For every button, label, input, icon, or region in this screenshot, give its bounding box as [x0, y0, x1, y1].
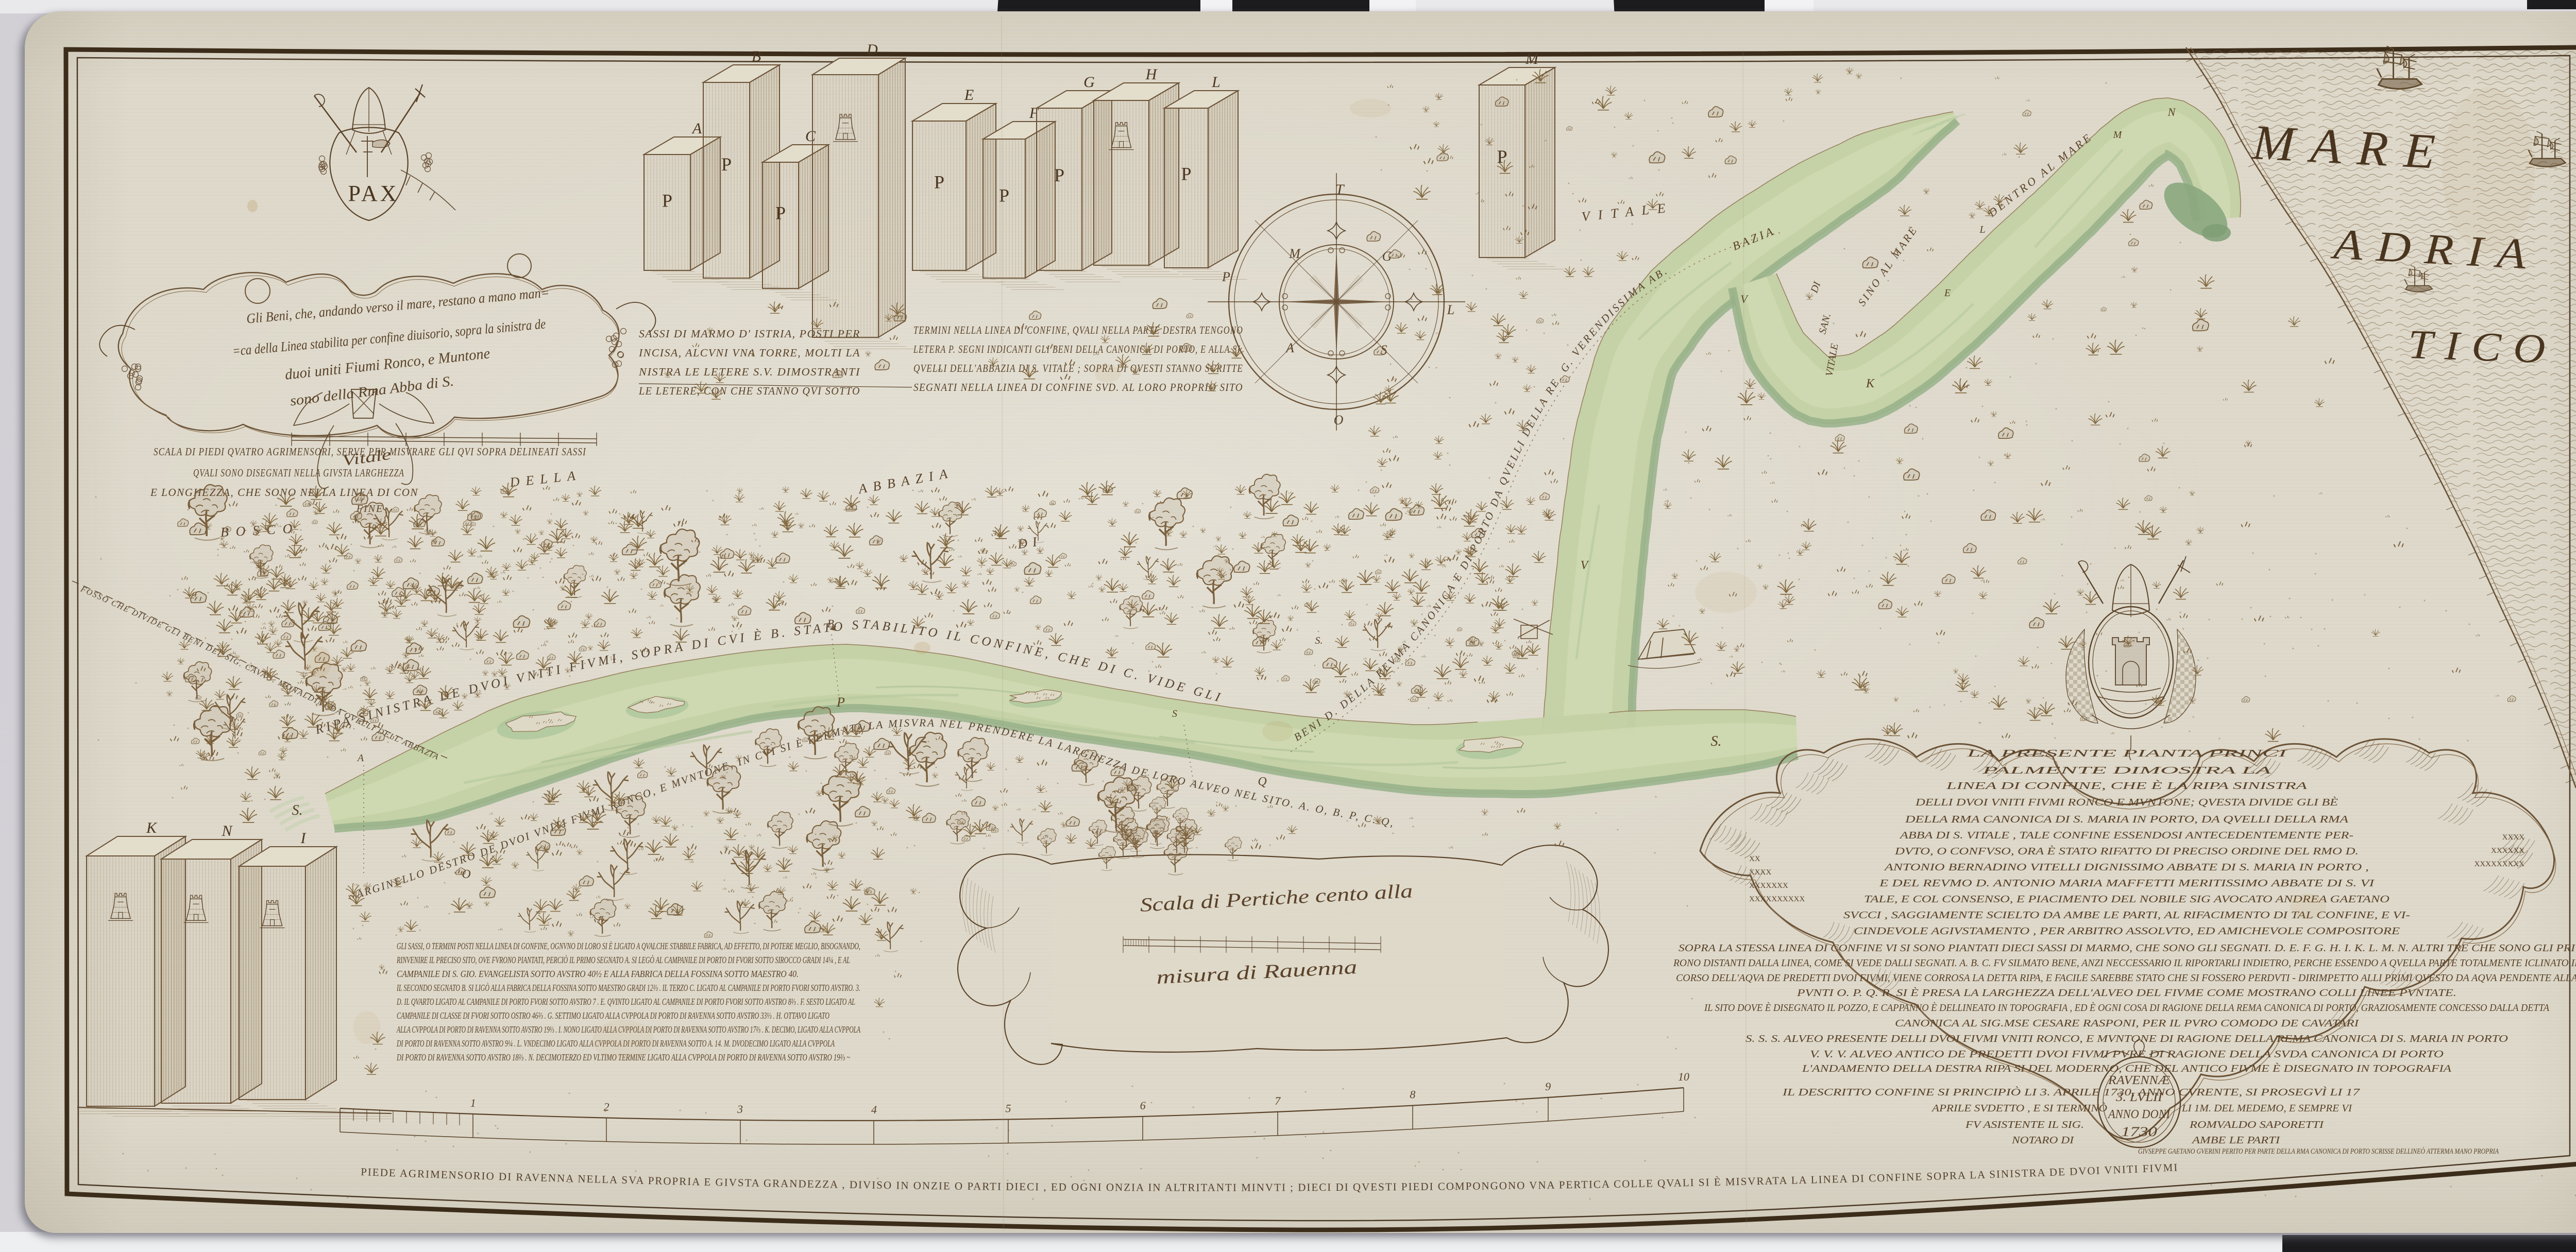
svg-text:GLI SASSI, O TERMINI POSTI N: GLI SASSI, O TERMINI POSTI NELLA LINEA D… — [397, 941, 860, 951]
svg-text:TERMINI NELLA LINEA DI CONFIN: TERMINI NELLA LINEA DI CONFINE, QVALI NE… — [913, 324, 1243, 336]
svg-text:E: E — [1944, 287, 1951, 299]
svg-text:K: K — [146, 819, 158, 836]
svg-text:G: G — [1083, 74, 1095, 91]
svg-text:PVNTI O. P. Q. R. SI È PRESA: PVNTI O. P. Q. R. SI È PRESA LA LARGHEZZ… — [1797, 987, 2456, 999]
svg-text:L: L — [1447, 302, 1454, 317]
svg-text:T: T — [1335, 181, 1345, 198]
svg-text:D: D — [866, 41, 878, 58]
svg-text:P: P — [662, 190, 672, 211]
svg-text:SOPRA LA STESSA LINEA DI CONFI: SOPRA LA STESSA LINEA DI CONFINE VI SI S… — [1679, 943, 2576, 954]
svg-text:PAX: PAX — [348, 181, 399, 206]
svg-text:P: P — [1497, 146, 1507, 167]
svg-text:9: 9 — [1545, 1080, 1551, 1093]
svg-text:CAMPANILE DI CLASSE DI FVORI S: CAMPANILE DI CLASSE DI FVORI SOTTO OSTRO… — [397, 1010, 829, 1021]
svg-text:Q: Q — [1258, 775, 1266, 788]
svg-text:LI 1M. DEL MEDEMO, E SEMPRE VI: LI 1M. DEL MEDEMO, E SEMPRE VI — [2181, 1103, 2353, 1114]
svg-text:P: P — [836, 695, 845, 710]
svg-text:XXXX: XXXX — [1749, 868, 1771, 877]
svg-text:ROMVALDO SAPORETTI: ROMVALDO SAPORETTI — [2189, 1120, 2325, 1130]
svg-text:APRILE SVDETTO , E SI TERMINÒ: APRILE SVDETTO , E SI TERMINÒ — [1931, 1103, 2107, 1114]
svg-text:RINVENIRE IL PRECISO SITO, O: RINVENIRE IL PRECISO SITO, OVE FVRONO PI… — [396, 955, 850, 965]
svg-text:L: L — [1211, 74, 1221, 91]
svg-text:XXXXXXX: XXXXXXX — [1749, 882, 1788, 890]
svg-text:S.: S. — [1711, 733, 1722, 749]
svg-text:QVALI SONO DISEGNATI NELLA GIV: QVALI SONO DISEGNATI NELLA GIVSTA LARGHE… — [193, 467, 404, 479]
svg-text:TICO: TICO — [2407, 322, 2558, 372]
svg-text:5: 5 — [1006, 1102, 1011, 1115]
svg-text:D. IL QVARTO LIGATO AL CAMPANI: D. IL QVARTO LIGATO AL CAMPANILE DI PORT… — [396, 997, 855, 1007]
svg-text:K: K — [1866, 377, 1875, 390]
svg-text:IL SITO DOVE È DISEGNATO IL PO: IL SITO DOVE È DISEGNATO IL POZZO, E CAP… — [1704, 1002, 2549, 1014]
svg-text:P: P — [775, 202, 786, 223]
svg-text:M: M — [2113, 129, 2123, 141]
svg-text:N: N — [221, 822, 233, 839]
svg-text:3: 3 — [737, 1103, 743, 1116]
svg-text:S: S — [1172, 708, 1177, 719]
svg-text:E DEL REVMO D. ANTONIO MARIA M: E DEL REVMO D. ANTONIO MARIA MAFFETTI ME… — [1879, 878, 2376, 889]
svg-text:ANTONIO BERNADINO VITELLI DIGN: ANTONIO BERNADINO VITELLI DIGNISSIMO ABB… — [1883, 862, 2369, 873]
svg-text:L: L — [1979, 224, 1985, 235]
svg-text:1730: 1730 — [2121, 1124, 2157, 1139]
svg-text:B: B — [752, 48, 761, 65]
svg-text:S.: S. — [292, 802, 303, 818]
svg-text:DELLA RMA CANONICA DI S. MARIA: DELLA RMA CANONICA DI S. MARIA IN PORTO,… — [1905, 814, 2349, 825]
svg-text:RAVENNÆ: RAVENNÆ — [2108, 1074, 2170, 1087]
svg-text:NISTRA LE LETERE S.V. DIMOSTRA: NISTRA LE LETERE S.V. DIMOSTRANTI — [638, 366, 860, 378]
svg-text:O: O — [1334, 413, 1344, 427]
svg-text:SASSI DI MARMO D' ISTRIA, POST: SASSI DI MARMO D' ISTRIA, POSTI PER — [639, 328, 860, 340]
svg-text:P: P — [999, 185, 1009, 206]
svg-text:E LONGHEZZA, CHE SONO NELLA LI: E LONGHEZZA, CHE SONO NELLA LINEA DI CON — [150, 486, 418, 499]
svg-text:P: P — [1222, 269, 1230, 284]
svg-text:N: N — [2167, 106, 2176, 118]
svg-text:PIEDE AGRIMENSORIO DI RAV: PIEDE AGRIMENSORIO DI RAVENNA NELLA SVA … — [361, 1161, 2179, 1193]
svg-text:LE LETERE, CON CHE STANNO QVI: LE LETERE, CON CHE STANNO QVI SOTTO — [638, 385, 860, 397]
svg-text:IL DESCRITTO CONFINE SI PRIN: IL DESCRITTO CONFINE SI PRINCIPIÒ LI 3. … — [1782, 1087, 2361, 1098]
svg-text:I: I — [300, 830, 307, 847]
svg-text:1: 1 — [470, 1096, 476, 1109]
svg-text:MARE: MARE — [2250, 114, 2452, 180]
svg-text:DELLA: DELLA — [509, 468, 582, 490]
svg-text:P: P — [1054, 165, 1064, 185]
svg-text:VITALE: VITALE — [1581, 200, 1674, 225]
svg-text:GIVSEPPE GAETANO GVERINI PERIT: GIVSEPPE GAETANO GVERINI PERITO PER PART… — [2138, 1147, 2499, 1156]
svg-text:10: 10 — [1678, 1070, 1689, 1083]
svg-text:A: A — [691, 120, 702, 137]
svg-text:2: 2 — [604, 1101, 609, 1113]
svg-text:LINEA DI CONFINE, CHE È: LINEA DI CONFINE, CHE È LA RIPA SINISTRA — [1945, 780, 2307, 792]
svg-text:P: P — [721, 154, 732, 175]
svg-text:6: 6 — [1140, 1099, 1146, 1112]
svg-text:H: H — [1145, 66, 1158, 83]
svg-text:P: P — [934, 172, 944, 193]
svg-text:SEGNATI NELLA LINEA DI CONFINE: SEGNATI NELLA LINEA DI CONFINE SVD. AL L… — [913, 381, 1243, 393]
svg-text:XXXXXXXXXX: XXXXXXXXXX — [1749, 895, 1805, 903]
svg-text:XXXXXX: XXXXXX — [2491, 847, 2524, 855]
svg-text:DVTO, O CONFVSO, ORA È STATO R: DVTO, O CONFVSO, ORA È STATO RIFATTO DI … — [1894, 846, 2359, 857]
svg-text:IL SECONDO SEGNATO B. SI LIGÒ: IL SECONDO SEGNATO B. SI LIGÒ ALLA FABRI… — [396, 983, 860, 993]
svg-text:M: M — [1525, 50, 1539, 67]
svg-text:DELLI DVOI VNITI FIVMI RONCO E: DELLI DVOI VNITI FIVMI RONCO E MVNTONE; … — [1915, 797, 2338, 808]
svg-text:SCALA DI PIEDI QVATRO AGRIMENS: SCALA DI PIEDI QVATRO AGRIMENSORI, SERVE… — [154, 445, 586, 458]
svg-text:FV ASISTENTE IL SIG.: FV ASISTENTE IL SIG. — [1965, 1120, 2084, 1130]
svg-text:ABBAZIA: ABBAZIA — [856, 465, 955, 496]
svg-text:PALMENTE: PALMENTE DIMOSTRA LA — [1981, 765, 2271, 776]
svg-text:CANONICA AL SIG.MSE CESARE RAS: CANONICA AL SIG.MSE CESARE RASPONI, PER … — [1895, 1018, 2360, 1029]
svg-text:XXXX: XXXX — [2502, 833, 2524, 842]
svg-text:AMBE LE PARTI: AMBE LE PARTI — [2191, 1135, 2280, 1146]
svg-text:V: V — [1581, 559, 1589, 572]
svg-text:ANNO DONI: ANNO DONI — [2107, 1108, 2171, 1121]
svg-text:4: 4 — [871, 1103, 877, 1116]
svg-text:XX: XX — [1749, 855, 1760, 863]
svg-text:8: 8 — [1410, 1088, 1415, 1101]
svg-text:3. LVLII: 3. LVLII — [2115, 1091, 2163, 1104]
svg-text:DI: DI — [1808, 280, 1823, 295]
svg-text:SAN.: SAN. — [1817, 312, 1833, 335]
svg-text:NOTARO DI: NOTARO DI — [2011, 1135, 2075, 1146]
svg-text:A: A — [357, 752, 364, 764]
svg-text:S. S. S. ALVEO PRESENTE D: S. S. S. ALVEO PRESENTE DELLI DVOI FIVMI… — [1745, 1034, 2508, 1044]
svg-text:CAMPANILE DI S. GIO. EVANGELIS: CAMPANILE DI S. GIO. EVANGELISTA SOTTO A… — [397, 969, 799, 979]
svg-text:RONO DISTANTI DALLA LINEA, COM: RONO DISTANTI DALLA LINEA, COME SI VEDE … — [1673, 958, 2576, 969]
svg-text:ABBA DI S. VITALE , TALE CONFI: ABBA DI S. VITALE , TALE CONFINE ESSENDO… — [1899, 830, 2353, 841]
svg-text:LA PRESENTE: LA PRESENTE PIANTA PRINCI — [1966, 748, 2289, 759]
svg-text:A: A — [1285, 340, 1294, 355]
svg-text:P: P — [1181, 164, 1191, 184]
svg-text:E: E — [964, 87, 974, 104]
svg-text:XXXXXXXXX: XXXXXXXXX — [2475, 860, 2525, 868]
svg-text:M: M — [1289, 246, 1301, 261]
svg-text:CINDEVOLE AGIVSTAMENTO , PER A: CINDEVOLE AGIVSTAMENTO , PER ARBITRO ASS… — [1854, 926, 2400, 937]
svg-text:CORSO DELL'AQVA DE PREDETTI DV: CORSO DELL'AQVA DE PREDETTI DVOI FIVMI, … — [1676, 973, 2576, 984]
svg-text:S.: S. — [1315, 635, 1323, 646]
svg-text:QVELLI DELL'ABBAZIA DI S. VITA: QVELLI DELL'ABBAZIA DI S. VITALE ; SOPRA… — [913, 362, 1243, 374]
svg-text:SVCCI , SAGGIAMENTE SCIELTO D: SVCCI , SAGGIAMENTE SCIELTO DA AMBE LE P… — [1843, 910, 2410, 921]
svg-text:7: 7 — [1275, 1094, 1281, 1107]
svg-text:LETERA P. SEGNI INDICANTI GLI: LETERA P. SEGNI INDICANTI GLI BENI DELLA… — [913, 343, 1243, 355]
